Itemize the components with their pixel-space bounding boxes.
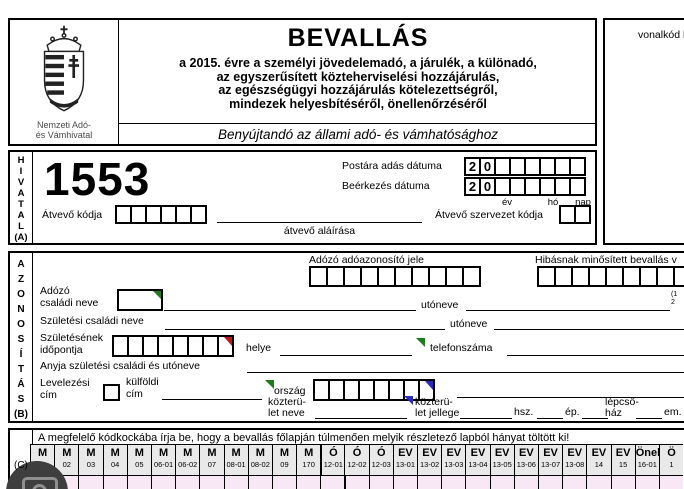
sheet-column-header: EV 13-02: [417, 444, 441, 476]
birth-family-name-line[interactable]: [165, 329, 445, 330]
green-flag-icon: [416, 338, 425, 347]
birth-place-label: helye: [246, 342, 271, 354]
sheet-count-input-row[interactable]: [30, 476, 683, 489]
sheet-column-header: Önell 16-01: [635, 444, 659, 476]
section-c-label: (C): [14, 460, 28, 472]
sheet-column-header: M 03: [78, 444, 102, 476]
subtitle-line2: az egyszerűsített közteherviselési hozzá…: [119, 71, 597, 85]
invalid-return-label: Hibásnak minősített bevallás v: [535, 254, 677, 266]
form-header-box: Nemzeti Adó- és Vámhivatal BEVALLÁS a 20…: [8, 18, 597, 146]
building-label: ép.: [565, 406, 580, 418]
birth-date-label: Születésének időpontja: [40, 332, 103, 356]
foreign-address-checkbox[interactable]: [103, 384, 120, 401]
sheet-column-header: EV 13-04: [465, 444, 489, 476]
tax-id-label: Adózó adóazonosító jele: [309, 254, 424, 266]
taxpayer-name-line2: családi neve: [40, 297, 98, 309]
tax-id-boxes[interactable]: [309, 266, 481, 287]
form-subtitle: a 2015. évre a személyi jövedelemadó, a …: [119, 57, 597, 111]
birth-place-line[interactable]: [280, 355, 412, 356]
sheet-column-header: EV 13-06: [514, 444, 538, 476]
edge-note: (1 2: [671, 291, 677, 307]
post-date-label: Postára adás dátuma: [342, 160, 442, 172]
form-title: BEVALLÁS: [119, 24, 597, 53]
unit-year-label: év: [492, 197, 522, 209]
sheet-column-header: M 170: [296, 444, 320, 476]
sheet-column-header: M 06-02: [175, 444, 199, 476]
receiver-code-label: Átvevő kódja: [42, 209, 102, 221]
mailing-line1: Levelezési: [40, 377, 90, 389]
mother-name-line[interactable]: [247, 372, 684, 373]
edge-note-line2: 2: [671, 299, 677, 307]
green-flag-icon: [265, 380, 274, 389]
mailing-line2: cím: [40, 389, 90, 401]
submit-note: Benyújtandó az állami adó- és vámhatóság…: [119, 127, 597, 142]
taxpayer-name-label: Adózó családi neve: [40, 285, 98, 309]
country-name-line[interactable]: [457, 397, 684, 398]
section-a-side-label: HIVATAL(A): [10, 152, 33, 243]
subtitle-line4: mindezek helyesbítéséről, önellenőrzésér…: [119, 98, 597, 112]
foreign-address-line[interactable]: [162, 399, 262, 400]
staircase-line1: lépcső-: [605, 397, 639, 408]
sheet-column-header: M 06-01: [151, 444, 175, 476]
taxpayer-name-line1: Adózó: [40, 285, 98, 297]
foreign-line2: cím: [126, 388, 159, 400]
sheet-column-header: Ó 12-02: [344, 444, 368, 476]
family-name-code-box[interactable]: [117, 289, 163, 311]
staircase-label: lépcső- ház: [605, 397, 639, 418]
invalid-return-boxes[interactable]: [537, 266, 684, 287]
sheet-column-header: EV 13-05: [490, 444, 514, 476]
receiver-signature-line[interactable]: [217, 222, 422, 223]
tax-form-1553-page: Nemzeti Adó- és Vámhivatal BEVALLÁS a 20…: [0, 0, 684, 489]
receiver-org-label: Átvevő szervezet kódja: [435, 209, 543, 221]
street-name-line-field[interactable]: [315, 418, 407, 419]
section-hivatal: HIVATAL(A) 1553 Postára adás dátuma 2 0 …: [8, 150, 597, 245]
birth-date-boxes[interactable]: [112, 335, 234, 357]
section-b-side-label: AZONOSÍTÁS(B): [10, 253, 33, 421]
street-name-line2: let neve: [268, 408, 306, 419]
blue-flag-icon: [404, 396, 413, 405]
section-azonositas: AZONOSÍTÁS(B) Adózó adóazonosító jele Hi…: [8, 251, 684, 423]
foreign-line1: külföldi: [126, 376, 159, 388]
subtitle-line3: az egészségügyi hozzájárulás kötelezetts…: [119, 84, 597, 98]
house-number-line[interactable]: [537, 418, 563, 419]
receiver-signature-label: átvevő aláírása: [217, 225, 422, 237]
mailing-address-label: Levelezési cím: [40, 377, 90, 401]
sheet-column-header: EV 13-07: [538, 444, 562, 476]
sheet-column-header: M 08-02: [248, 444, 272, 476]
arrival-date-label: Beérkezés dátuma: [342, 180, 430, 192]
barcode-label: vonalkód h: [638, 29, 684, 41]
given-name-line[interactable]: [466, 310, 670, 311]
sheet-column-header: M 05: [127, 444, 151, 476]
birth-given-name-label: utóneve: [450, 318, 487, 330]
org-name-line1: Nemzeti Adó-: [10, 120, 118, 130]
birth-date-line1: Születésének: [40, 332, 103, 344]
header-divider: [118, 123, 597, 124]
receiver-org-boxes[interactable]: [559, 205, 591, 224]
sheet-column-header: Ó 12-01: [320, 444, 344, 476]
barcode-box: vonalkód h: [603, 18, 684, 245]
street-type-line1: közterü-: [415, 397, 459, 408]
sheet-column-header: M 04: [103, 444, 127, 476]
mother-name-label: Anyja születési családi és utóneve: [40, 360, 200, 372]
sheet-count-instruction: A megfelelő kódkockába írja be, hogy a b…: [38, 432, 569, 444]
org-name-line2: és Vámhivatal: [10, 130, 118, 140]
street-type-line2: let jellege: [415, 408, 459, 419]
street-name-line1: közterü-: [268, 397, 306, 408]
staircase-line2: ház: [605, 408, 639, 419]
birth-family-name-label: Születési családi neve: [40, 315, 144, 327]
birth-given-name-line[interactable]: [494, 329, 684, 330]
birth-date-line2: időpontja: [40, 344, 103, 356]
post-date-boxes[interactable]: 2 0: [464, 157, 586, 176]
staircase-line-field[interactable]: [636, 418, 662, 419]
sheet-count-header-row: M 01 M 02 M 03 M 04 M 05: [30, 444, 683, 476]
sheet-column-header: M 08-01: [224, 444, 248, 476]
floor-label: em.: [664, 406, 682, 418]
sheet-column-header: Ó 12-03: [369, 444, 393, 476]
receiver-code-boxes[interactable]: [115, 205, 207, 224]
nav-coat-of-arms-icon: [32, 24, 96, 121]
sheet-column-header: Ö 1: [659, 444, 683, 476]
phone-label: telefonszáma: [430, 342, 492, 354]
sheet-column-header: EV 13-08: [562, 444, 586, 476]
logo-panel: Nemzeti Adó- és Vámhivatal: [10, 20, 119, 144]
form-number: 1553: [44, 152, 150, 206]
sheet-column-header: M 07: [199, 444, 223, 476]
foreign-address-label: külföldi cím: [126, 376, 159, 400]
subtitle-line1: a 2015. évre a személyi jövedelemadó, a …: [119, 57, 597, 71]
family-name-line[interactable]: [164, 310, 416, 311]
sheet-column-header: M 09: [272, 444, 296, 476]
arrival-date-boxes[interactable]: 2 0: [464, 177, 586, 196]
sheet-column-header: EV 14: [586, 444, 610, 476]
given-name-label: utóneve: [421, 299, 458, 311]
street-name-label: közterü- let neve: [268, 397, 306, 418]
sheet-column-header: EV 13-03: [441, 444, 465, 476]
phone-line[interactable]: [507, 355, 684, 356]
sheet-column-header: EV 13-01: [393, 444, 417, 476]
edge-note-line1: (1: [671, 291, 677, 299]
street-type-label: közterü- let jellege: [415, 397, 459, 418]
sheet-column-header: EV 15: [611, 444, 635, 476]
house-number-label: hsz.: [514, 406, 533, 418]
street-type-line-field[interactable]: [460, 418, 512, 419]
